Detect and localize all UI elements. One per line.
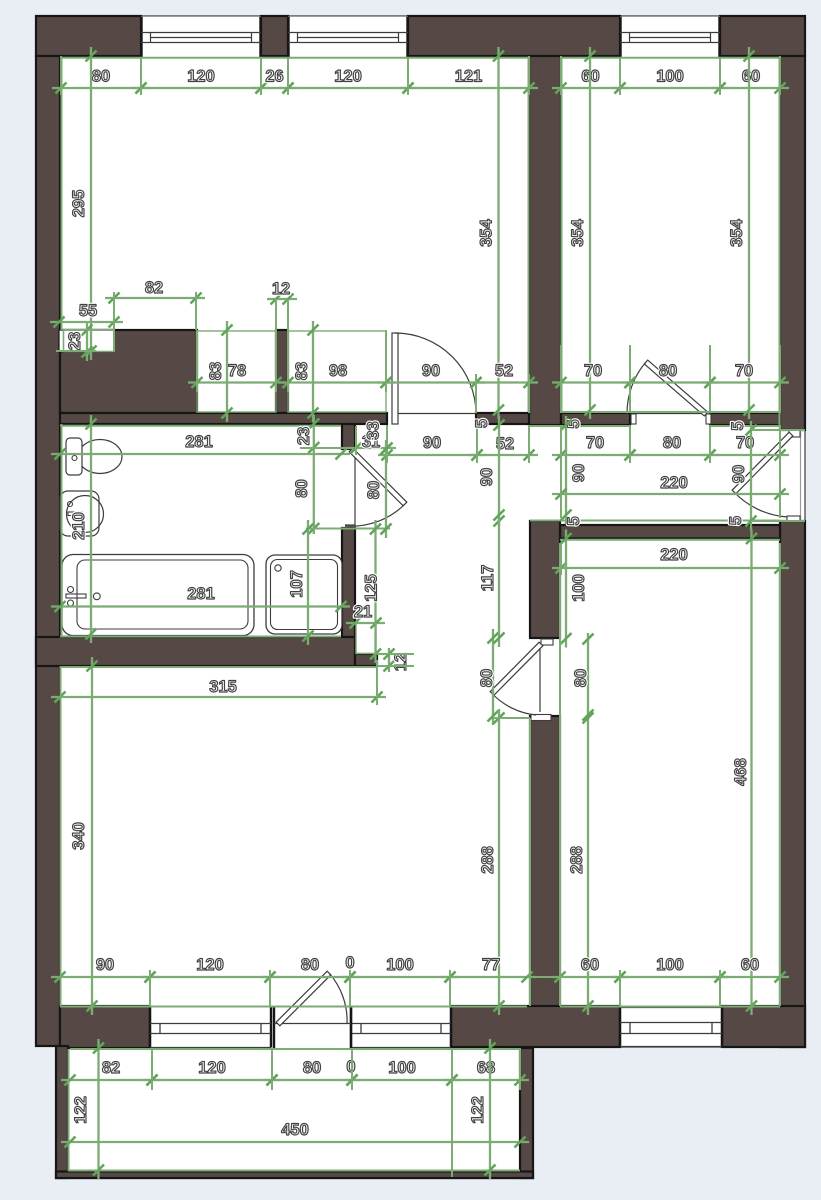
svg-text:80: 80 [663,434,681,452]
svg-text:117: 117 [479,565,497,592]
svg-text:5: 5 [729,421,747,430]
svg-text:80: 80 [303,1059,321,1077]
svg-text:70: 70 [586,434,604,452]
svg-text:107: 107 [288,570,306,598]
svg-text:83: 83 [293,362,311,380]
svg-text:90: 90 [423,434,441,452]
svg-text:281: 281 [185,433,213,451]
svg-text:120: 120 [187,68,215,86]
svg-text:295: 295 [70,190,88,218]
svg-text:60: 60 [581,956,599,974]
svg-text:68: 68 [477,1059,495,1077]
svg-text:220: 220 [660,546,688,564]
svg-text:33: 33 [365,421,383,439]
svg-text:90: 90 [422,362,440,380]
svg-text:120: 120 [196,956,224,974]
svg-text:80: 80 [365,481,383,499]
svg-text:60: 60 [741,956,759,974]
svg-text:82: 82 [145,279,163,297]
svg-text:98: 98 [329,362,347,380]
svg-text:83: 83 [207,362,225,380]
svg-text:90: 90 [478,468,496,486]
svg-text:21: 21 [354,603,372,621]
svg-text:23: 23 [295,427,313,445]
svg-text:281: 281 [187,585,215,603]
svg-text:52: 52 [495,362,513,380]
svg-text:5: 5 [565,516,583,525]
svg-text:80: 80 [659,362,677,380]
svg-text:80: 80 [301,956,319,974]
svg-text:70: 70 [735,362,753,380]
svg-text:315: 315 [209,678,237,696]
svg-text:23: 23 [66,332,84,350]
svg-text:288: 288 [479,846,497,874]
svg-text:82: 82 [102,1059,120,1077]
svg-text:120: 120 [334,68,362,86]
svg-text:125: 125 [363,574,381,602]
svg-text:12: 12 [272,280,290,298]
svg-text:80: 80 [572,669,590,687]
svg-text:100: 100 [656,68,684,86]
svg-text:354: 354 [569,218,587,246]
svg-text:78: 78 [228,362,246,380]
svg-text:122: 122 [72,1096,90,1124]
svg-text:80: 80 [293,479,311,497]
svg-text:120: 120 [198,1059,226,1077]
svg-text:340: 340 [70,822,88,850]
svg-text:0: 0 [345,954,354,972]
svg-text:90: 90 [730,465,748,483]
svg-text:5: 5 [727,516,745,525]
svg-text:450: 450 [281,1121,309,1139]
svg-text:100: 100 [386,956,414,974]
svg-text:220: 220 [660,474,688,492]
svg-text:60: 60 [742,68,760,86]
svg-text:210: 210 [70,512,88,540]
svg-text:12: 12 [392,653,410,671]
svg-text:80: 80 [92,68,110,86]
svg-text:77: 77 [482,956,500,974]
svg-text:90: 90 [570,464,588,482]
svg-text:100: 100 [656,956,684,974]
svg-text:80: 80 [478,669,496,687]
svg-text:122: 122 [469,1096,487,1124]
svg-text:70: 70 [584,362,602,380]
svg-text:468: 468 [732,758,750,786]
svg-text:288: 288 [568,846,586,874]
svg-text:121: 121 [455,68,483,86]
svg-text:5: 5 [473,419,491,428]
svg-text:100: 100 [388,1059,416,1077]
svg-text:100: 100 [570,574,588,602]
svg-text:55: 55 [79,302,97,320]
svg-text:354: 354 [478,218,496,246]
svg-text:90: 90 [96,956,114,974]
svg-text:354: 354 [728,218,746,246]
svg-text:26: 26 [265,68,283,86]
